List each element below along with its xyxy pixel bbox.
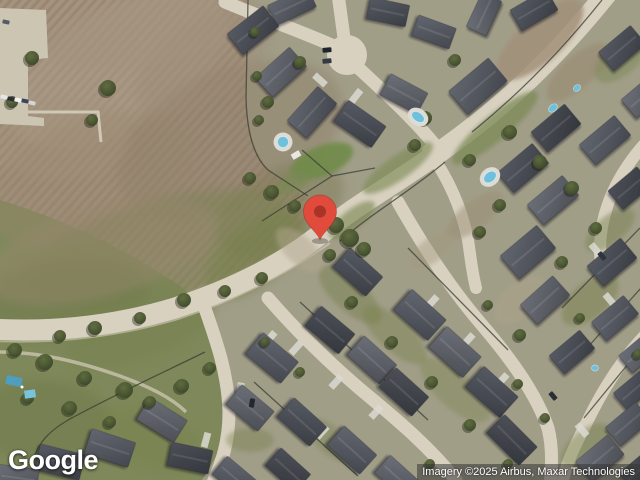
satellite-imagery — [0, 0, 640, 480]
pin-dot — [314, 206, 326, 218]
satellite-map-canvas[interactable]: Google Imagery ©2025 Airbus, Maxar Techn… — [0, 0, 640, 480]
imagery-attribution: Imagery ©2025 Airbus, Maxar Technologies — [417, 464, 640, 480]
google-logo[interactable]: Google — [8, 445, 98, 476]
